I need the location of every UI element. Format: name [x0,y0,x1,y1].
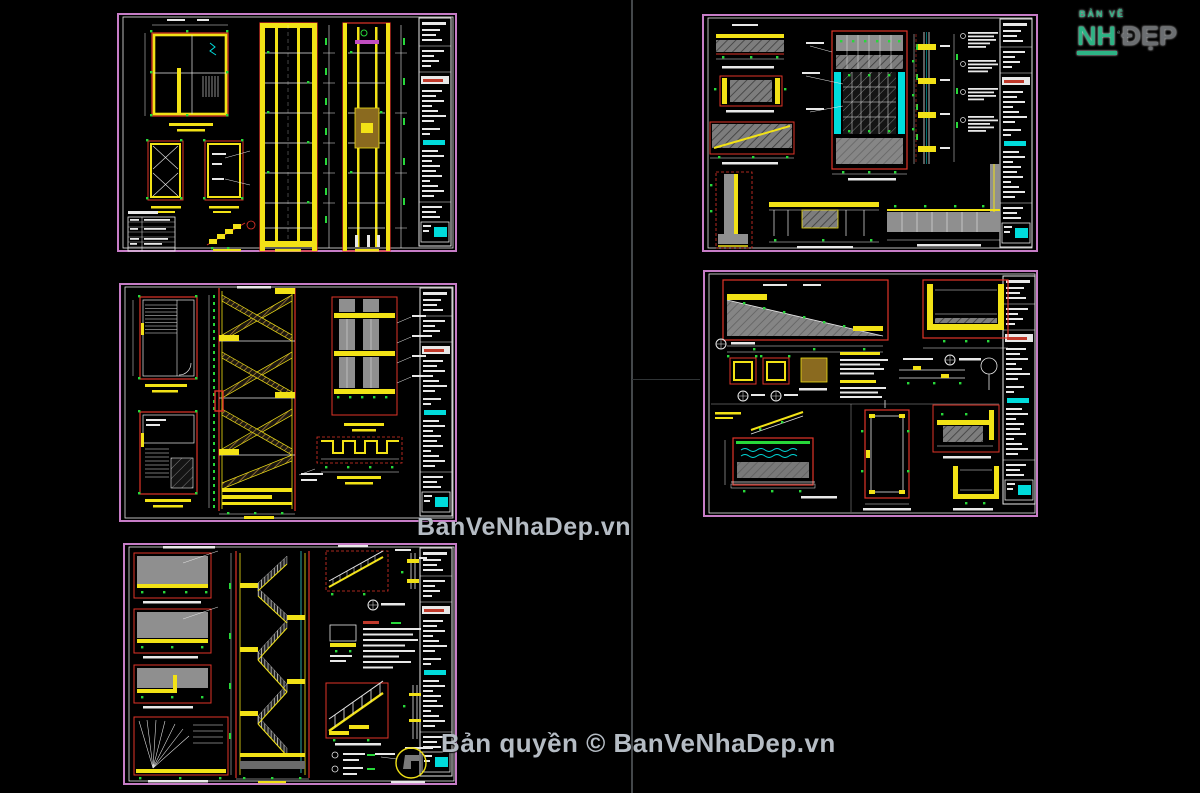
step-ramp-mini-detail [715,412,803,434]
jamb-detail [714,76,786,113]
shaft-plan-detail-2 [203,139,250,213]
planter-tank-detail [725,438,837,499]
logo-text-nh: NH [1077,23,1116,49]
notes-list [363,621,421,669]
sill-detail [716,24,784,69]
stair-wall-section-detail [332,297,426,432]
spec-text-list [840,352,888,398]
elevator-lobby-plan [145,19,228,132]
baluster-detail-top [395,549,427,589]
channel-detail [953,466,999,511]
step-nosing-circle-detail [375,748,426,783]
railing-detail-top [326,545,388,595]
latch-mechanism-detail [899,358,997,390]
fixing-detail-small [330,625,356,662]
column-base-detail-1 [727,355,765,401]
watermark-copyright: Bản quyền © BanVeNhaDep.vn [441,728,836,759]
drawing-sheet-facade-details [702,14,1038,252]
stair-plan-upper [133,295,197,393]
bolt-connection-detail [332,752,375,775]
general-notes [961,32,999,132]
drawing-sheet-elevator-sections [117,13,457,252]
slab-plan-detail-1 [134,546,218,604]
shaft-plan-detail-1 [146,139,183,213]
logo-text-dep: ĐẸP [1121,23,1177,49]
drawing-sheet-stair-details [123,543,457,785]
dimension-string-1 [323,25,335,248]
column-base-detail-2 [760,355,798,401]
watermark-center: BanVeNhaDep.vn [417,513,631,542]
panel-run-detail [887,164,1000,247]
slab-plan-detail-2 [134,607,218,659]
timber-block-detail [799,358,827,391]
curtain-wall-elevation [802,31,918,181]
ramp-section-detail [716,280,888,352]
head-detail [710,122,794,165]
railing-detail-mid [326,681,388,746]
site-logo: BẢN VẼ NH ĐẸP [1077,9,1177,65]
elevator-section-2 [343,23,390,252]
stair-section-main [209,286,323,519]
viewer-divider-branch [632,379,700,380]
stair-fan-plan-detail [134,717,228,783]
dimension-string-2 [395,25,407,248]
notes-table [128,211,175,251]
slab-plan-detail-3 [134,665,211,709]
viewer-divider-line [631,0,633,793]
logo-text-top: BẢN VẼ [1079,9,1177,19]
logo-underline [1077,51,1117,55]
drawing-sheet-stair-sections [119,283,457,522]
pit-section-detail [923,280,1008,365]
cad-image-canvas: BanVeNhaDep.vn Bản quyền © BanVeNhaDep.v… [0,0,1200,793]
elevator-section-1 [260,23,317,252]
title-block [420,288,452,516]
stair-plan-lower [138,410,197,508]
corner-column-detail [710,172,752,248]
mullion-section-strip [912,32,958,164]
stair-section-detail [229,551,309,783]
house-icon [1117,15,1120,49]
title-block [419,18,451,246]
narrow-shaft-plan [861,400,911,511]
shelf-bracket-detail [933,405,999,459]
handrail-plan-detail [317,437,402,485]
stair-step-detail [207,221,255,251]
canopy-beam-detail [769,202,879,249]
title-block [1000,19,1032,247]
section-marker [368,600,405,610]
drawing-sheet-ramp-details [703,270,1038,517]
